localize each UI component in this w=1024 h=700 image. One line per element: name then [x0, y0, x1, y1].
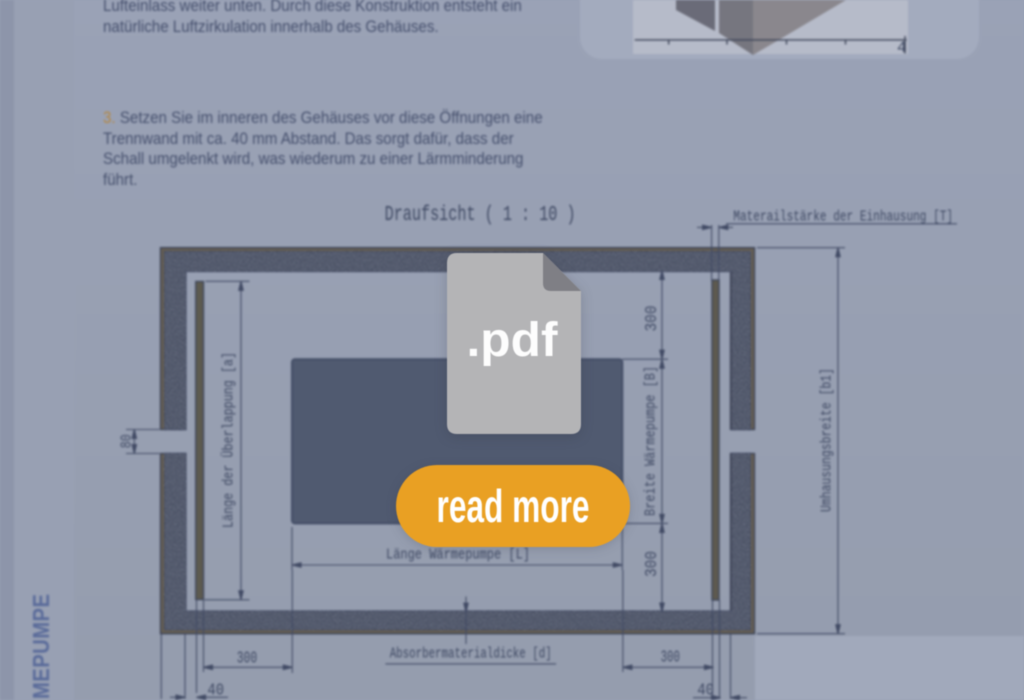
- svg-text:.pdf: .pdf: [467, 314, 559, 367]
- svg-text:300: 300: [661, 648, 680, 667]
- svg-text:Absorbermaterialdicke [d]: Absorbermaterialdicke [d]: [390, 647, 552, 663]
- svg-text:Umhausungsbreite [b1]: Umhausungsbreite [b1]: [820, 368, 836, 512]
- svg-text:80: 80: [120, 434, 136, 448]
- svg-text:300: 300: [642, 306, 661, 332]
- svg-text:40: 40: [207, 681, 224, 700]
- svg-text:Breite Wärmepumpe [B]: Breite Wärmepumpe [B]: [644, 366, 660, 516]
- svg-text:Draufsicht ( 1 : 10 ): Draufsicht ( 1 : 10 ): [385, 204, 576, 227]
- svg-text:300: 300: [642, 551, 661, 577]
- svg-text:Materailstärke der Einhausung: Materailstärke der Einhausung [T]: [733, 210, 953, 226]
- svg-text:Länge der Überlappung [a]: Länge der Überlappung [a]: [220, 352, 238, 528]
- svg-text:Länge Wärmepumpe [L]: Länge Wärmepumpe [L]: [386, 548, 530, 564]
- svg-text:300: 300: [237, 649, 258, 668]
- svg-text:4: 4: [897, 39, 907, 57]
- svg-text:read more: read more: [437, 480, 590, 532]
- svg-text:40: 40: [697, 681, 714, 700]
